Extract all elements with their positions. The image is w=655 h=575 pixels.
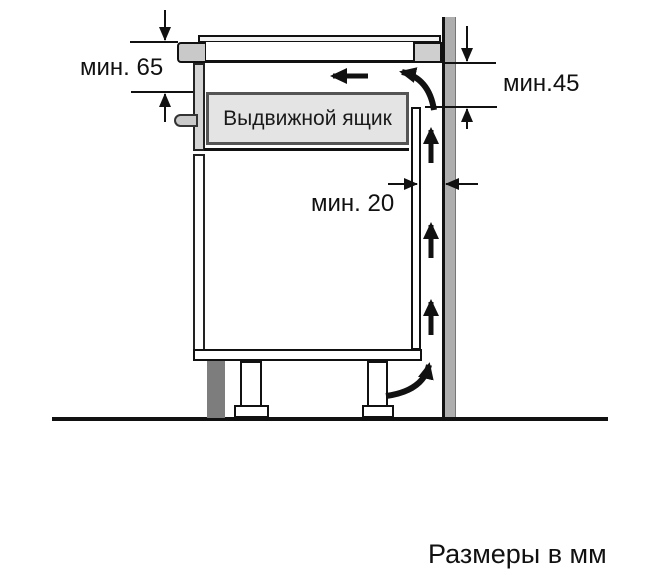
installation-diagram: Выдвижной ящик — [0, 0, 655, 575]
dim-label-min45: мин.45 — [503, 70, 580, 98]
units-caption: Размеры в мм — [428, 539, 607, 570]
dim-label-min20: мин. 20 — [311, 190, 394, 218]
dim-label-min65: мин. 65 — [80, 54, 163, 82]
dimension-min45 — [425, 26, 497, 129]
airflow-curve-top-arrow — [402, 72, 434, 110]
airflow-curve-bottom-arrow — [386, 365, 429, 396]
airflow-arrows — [333, 72, 434, 396]
